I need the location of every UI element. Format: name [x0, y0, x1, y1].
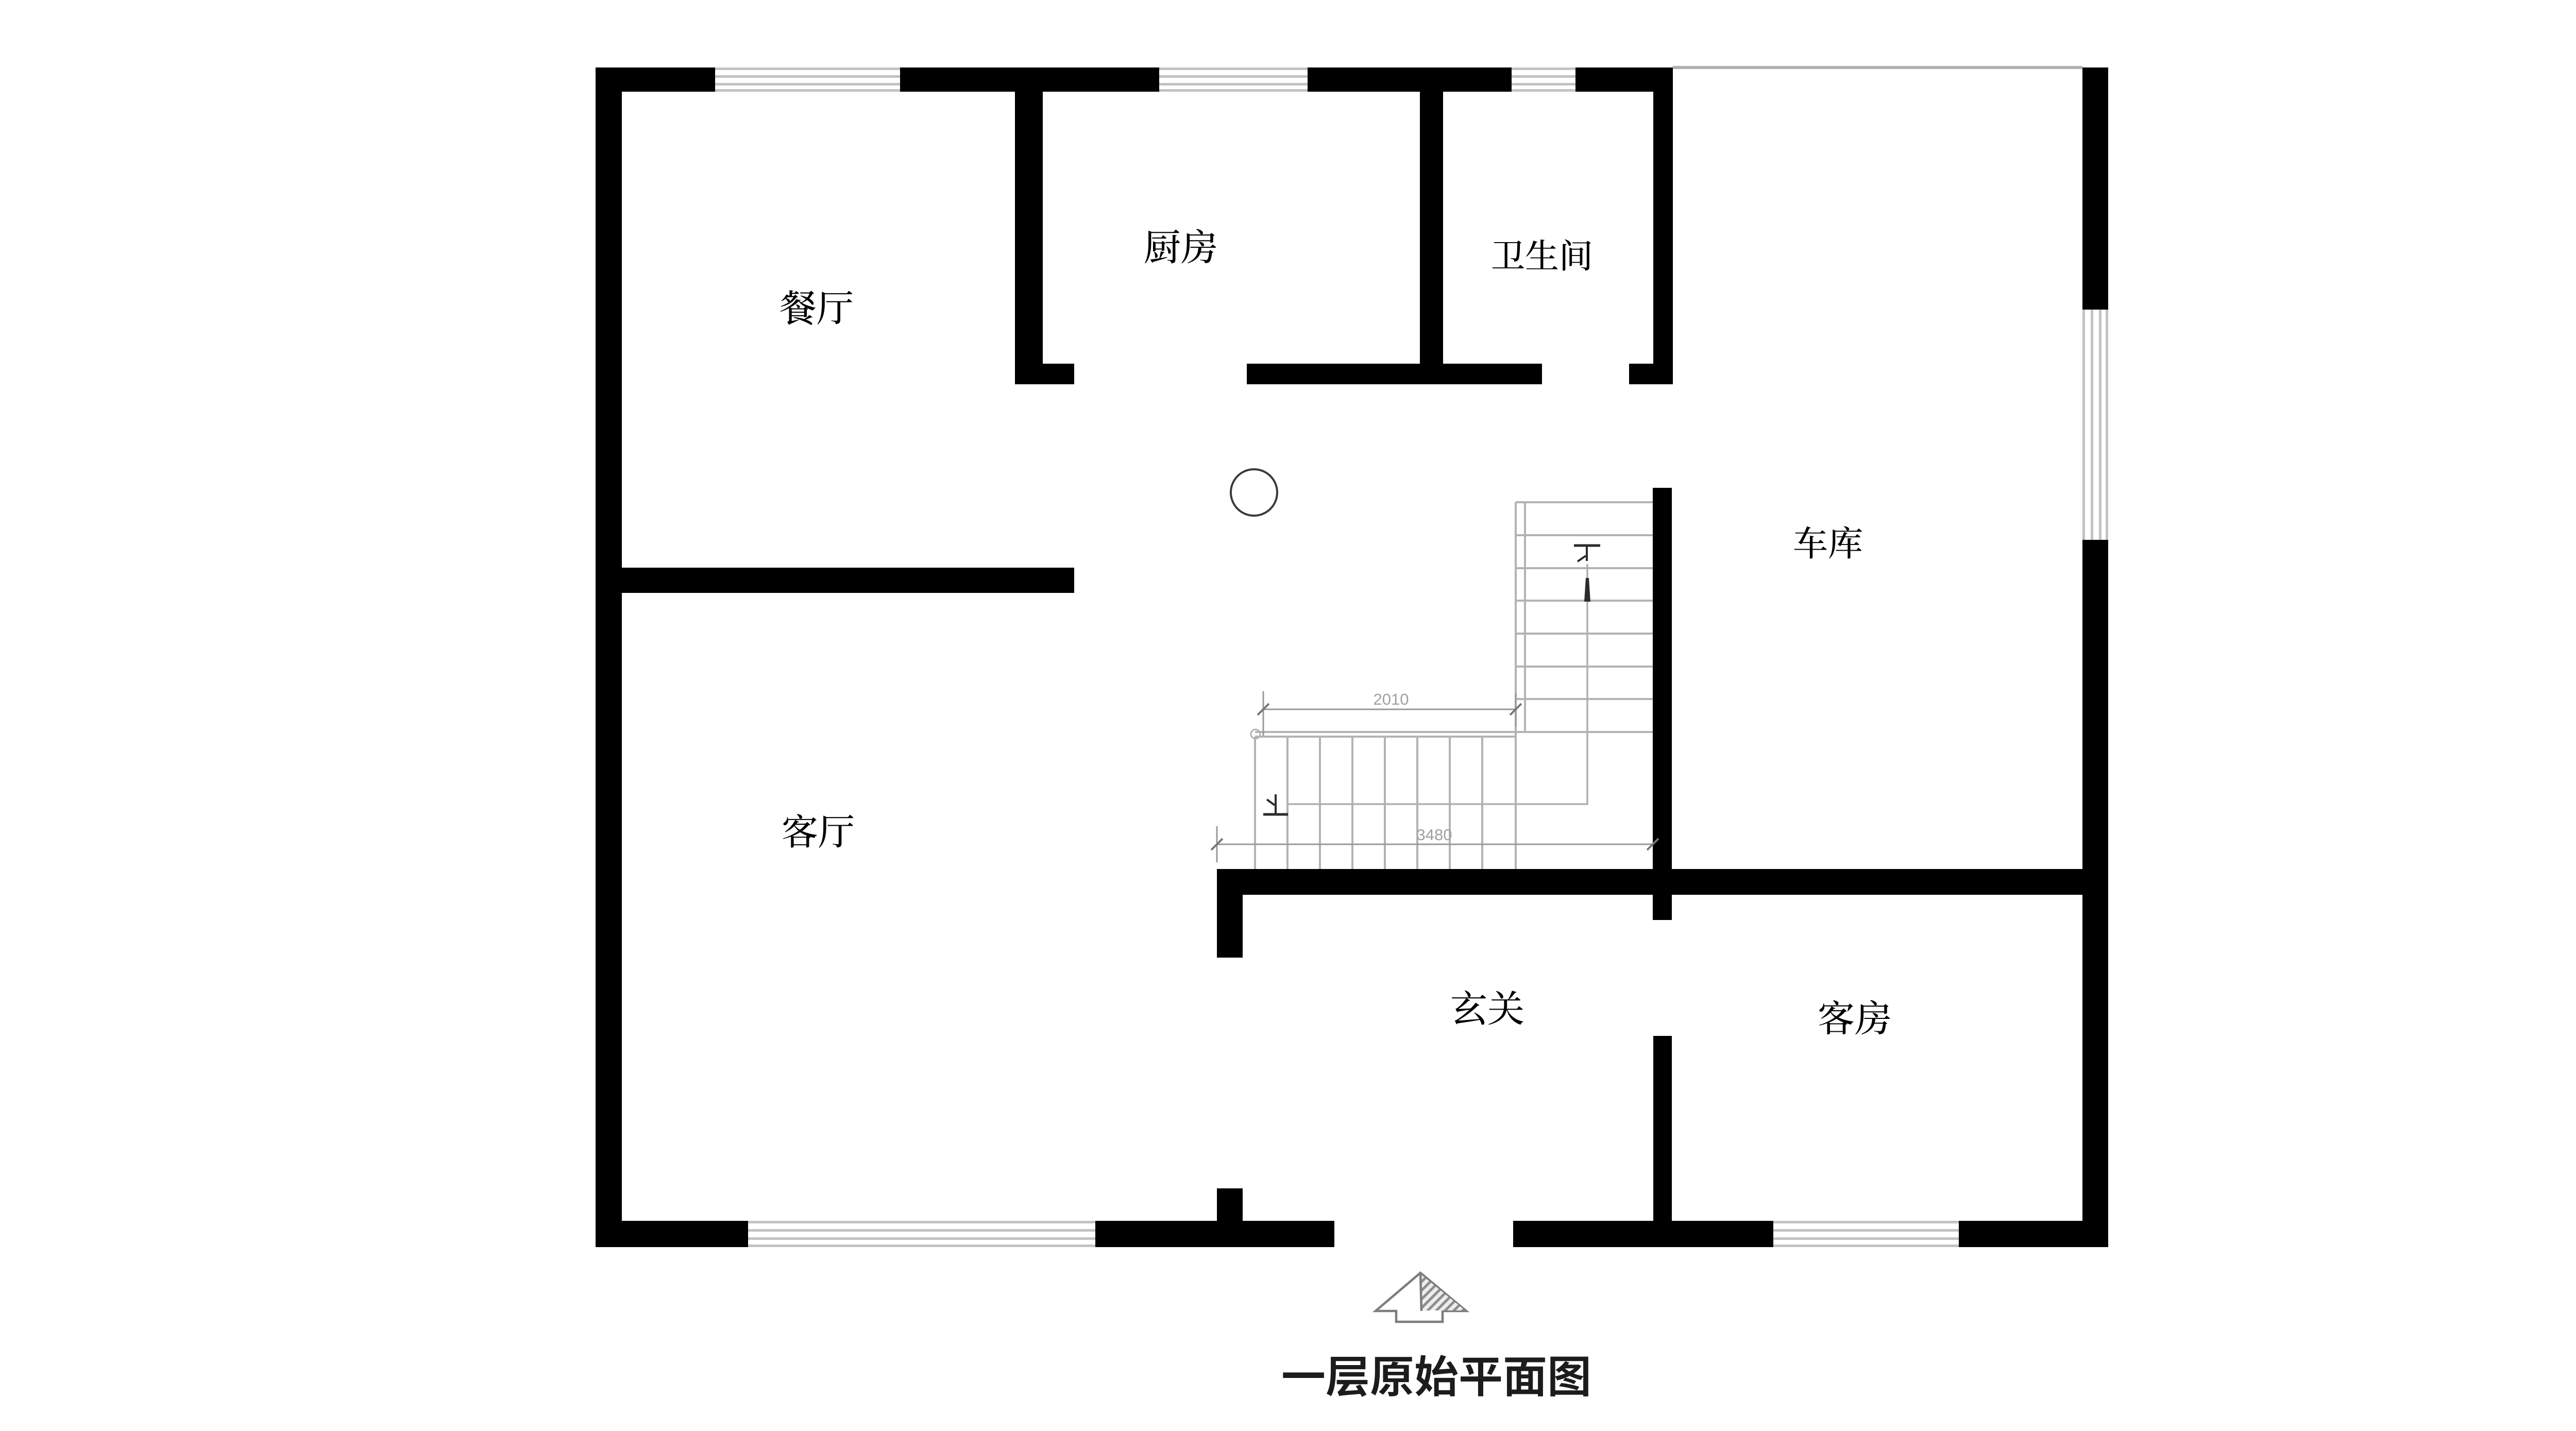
svg-text:2010: 2010: [1374, 690, 1409, 708]
svg-text:3480: 3480: [1417, 826, 1452, 844]
